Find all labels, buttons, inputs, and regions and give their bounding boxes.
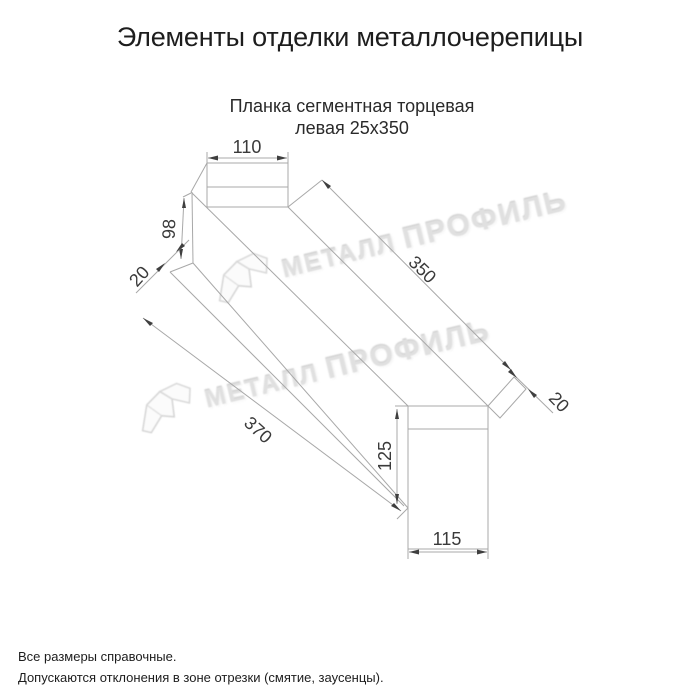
right-end-profile bbox=[408, 377, 526, 549]
catalog-page: Элементы отделки металлочерепицы Планка … bbox=[0, 0, 700, 700]
dim-label: 20 bbox=[125, 262, 153, 290]
dim-label: 125 bbox=[375, 441, 395, 471]
flange-far-edge bbox=[288, 207, 488, 406]
arrowhead-icon bbox=[395, 494, 399, 504]
arrowhead-icon bbox=[208, 156, 218, 161]
left-end-profile bbox=[170, 163, 288, 272]
dim-label: 110 bbox=[233, 137, 262, 157]
dim-length-bottom: 370 bbox=[143, 318, 408, 519]
dim-height-left: 98 bbox=[159, 193, 191, 259]
hem-outer-edge bbox=[170, 272, 404, 506]
web-top-edge bbox=[191, 192, 408, 406]
arrowhead-icon bbox=[409, 550, 419, 555]
dim-length-top: 350 bbox=[288, 180, 511, 370]
arrowhead-icon bbox=[182, 198, 186, 208]
arrowhead-icon bbox=[508, 369, 517, 378]
right-end-cap-face bbox=[408, 406, 488, 549]
arrowhead-icon bbox=[277, 156, 287, 161]
extension-line bbox=[288, 180, 322, 207]
technical-drawing: 110 98 20 350 bbox=[0, 0, 700, 700]
arrowhead-icon bbox=[395, 409, 399, 419]
dim-label: 98 bbox=[159, 219, 180, 240]
dim-hem-right: 20 bbox=[508, 369, 573, 416]
right-hem-flap bbox=[488, 377, 526, 418]
left-hem-fold-edge bbox=[170, 263, 193, 272]
dim-top-width-left: 110 bbox=[207, 137, 288, 163]
dim-label: 350 bbox=[405, 252, 441, 287]
extension-line bbox=[183, 193, 191, 197]
left-end-cap-face bbox=[207, 163, 288, 207]
dim-label: 115 bbox=[433, 529, 462, 549]
left-end-top-edge bbox=[191, 163, 207, 192]
dimension-line bbox=[143, 318, 401, 511]
arrowhead-icon bbox=[156, 263, 165, 272]
dim-label: 20 bbox=[545, 388, 573, 416]
dim-label: 370 bbox=[240, 413, 276, 448]
dim-hem-left: 20 bbox=[125, 240, 189, 293]
arrowhead-icon bbox=[477, 550, 487, 555]
dim-bottom-width-right: 115 bbox=[408, 529, 488, 559]
left-end-vertical-edge bbox=[192, 192, 193, 263]
strip-body bbox=[170, 192, 488, 508]
arrowhead-icon bbox=[179, 249, 183, 259]
